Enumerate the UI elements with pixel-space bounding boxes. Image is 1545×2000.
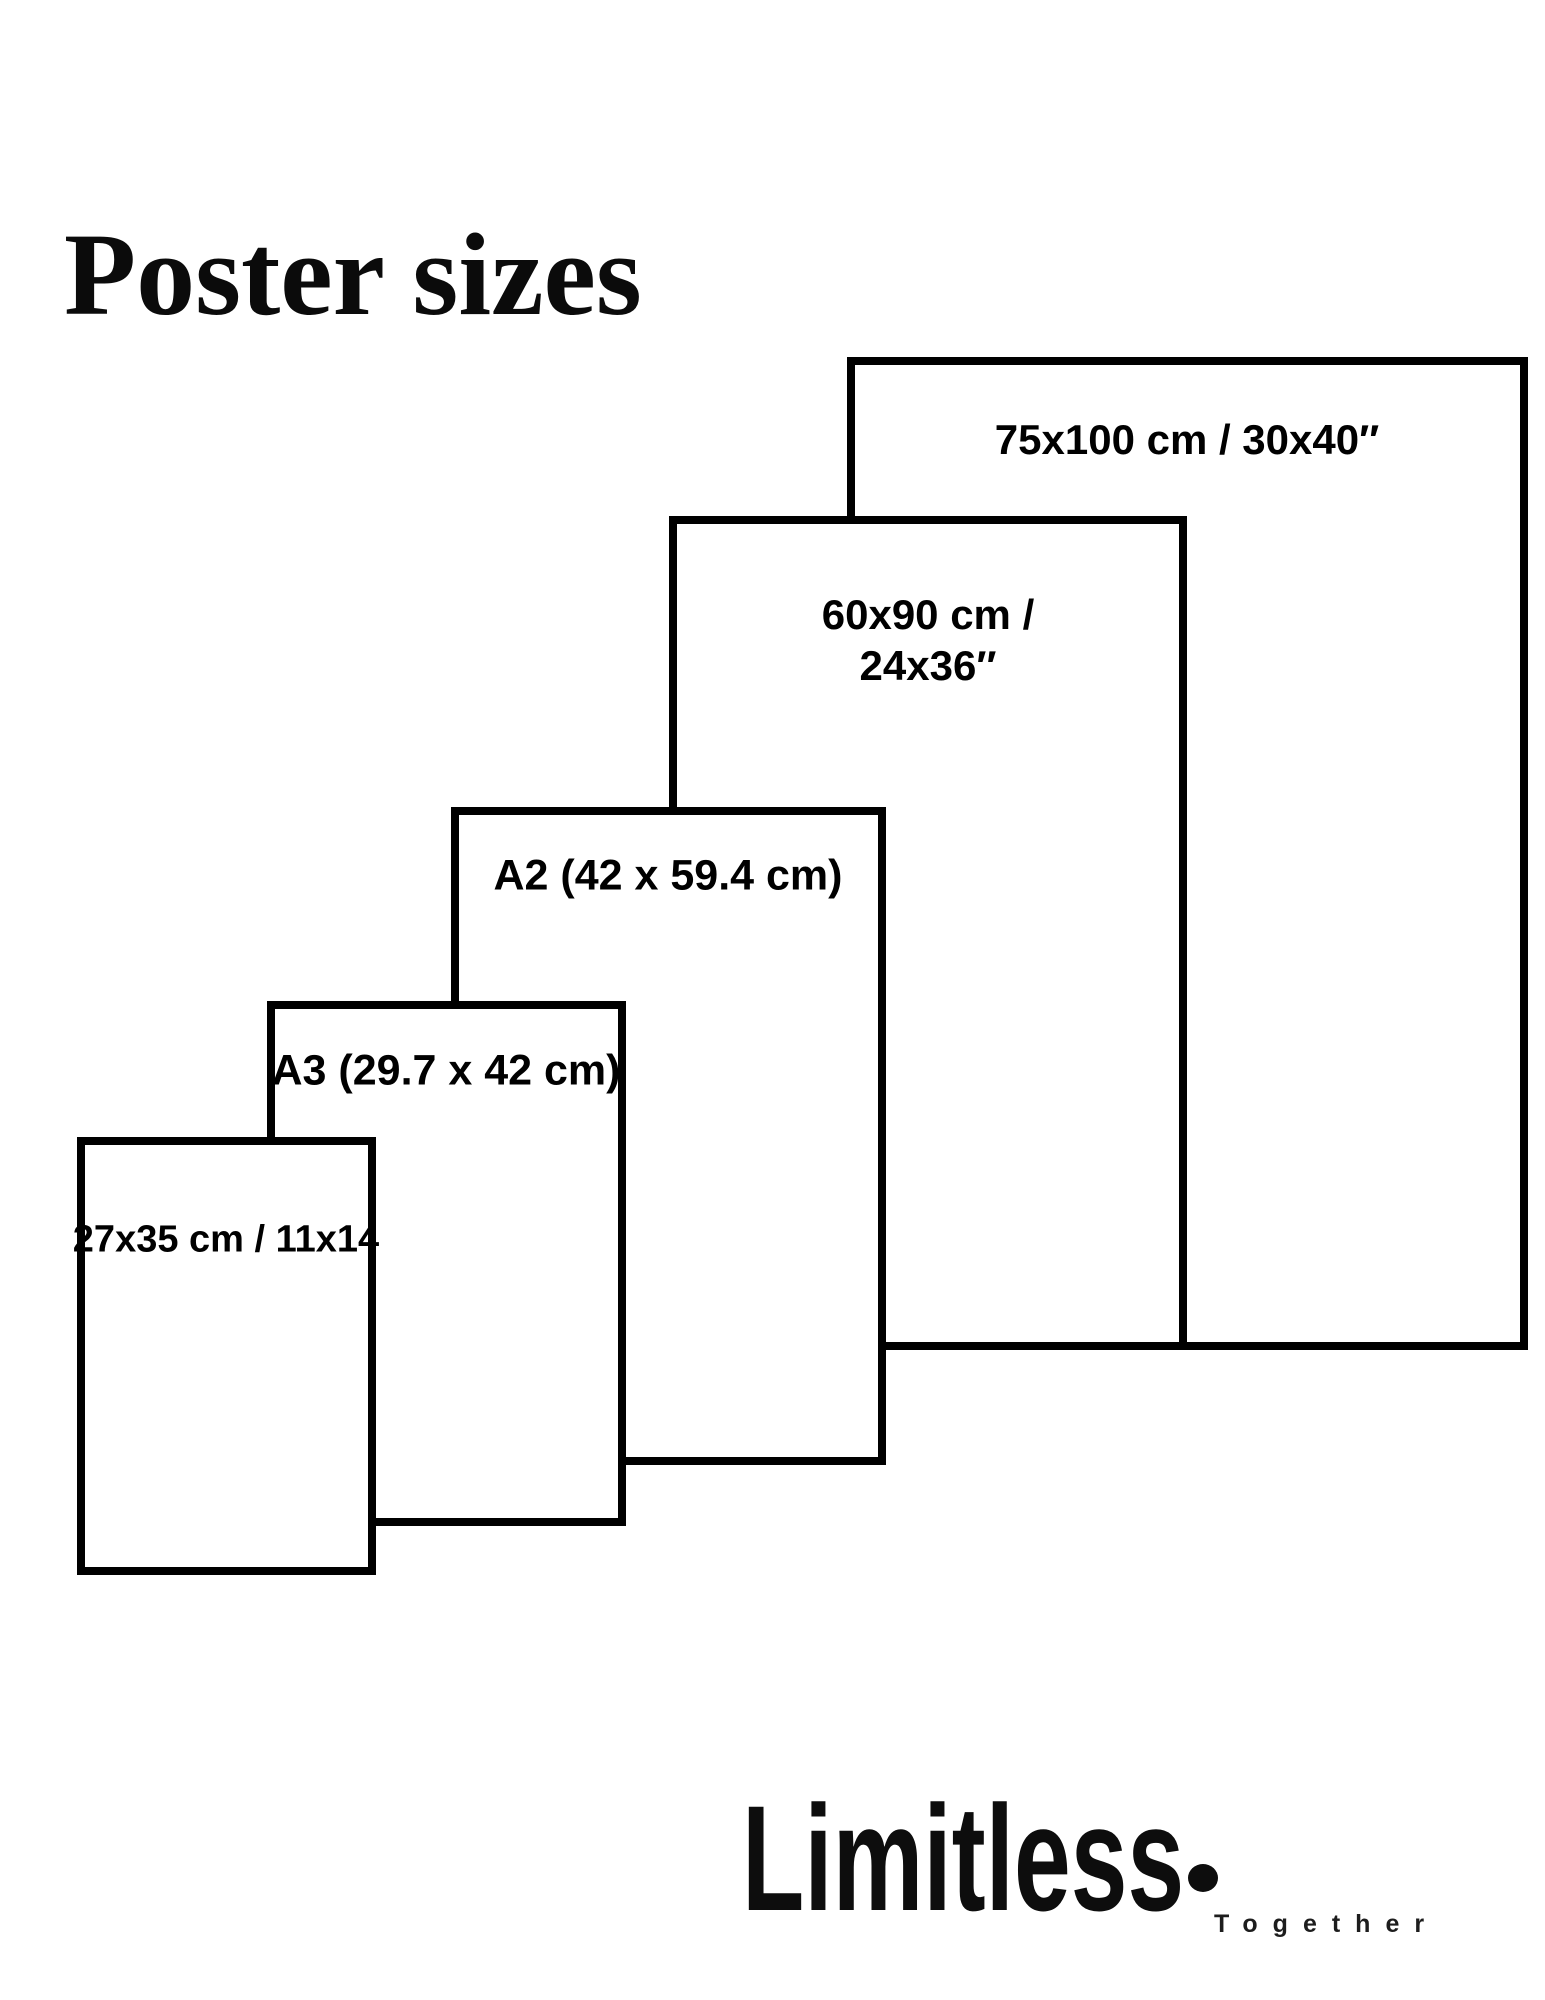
poster-label-27x35: 27x35 cm / 11x14 xyxy=(73,1219,379,1262)
brand-tagline: Together xyxy=(1214,1910,1439,1939)
poster-label-60x90: 60x90 cm / 24x36″ xyxy=(822,589,1035,691)
poster-rect-27x35 xyxy=(77,1137,376,1575)
poster-label-60x90-line1: 60x90 cm / xyxy=(822,589,1035,640)
poster-label-a2: A2 (42 x 59.4 cm) xyxy=(494,852,843,901)
poster-label-75x100: 75x100 cm / 30x40″ xyxy=(995,416,1379,464)
poster-sizes-page: Poster sizes 75x100 cm / 30x40″ 60x90 cm… xyxy=(0,0,1545,2000)
brand-period-dot xyxy=(1188,1864,1218,1892)
poster-label-a3: A3 (29.7 x 42 cm) xyxy=(272,1047,621,1096)
page-title: Poster sizes xyxy=(64,216,642,334)
brand-name: Limitless xyxy=(742,1783,1184,1933)
poster-label-60x90-line2: 24x36″ xyxy=(822,640,1035,691)
